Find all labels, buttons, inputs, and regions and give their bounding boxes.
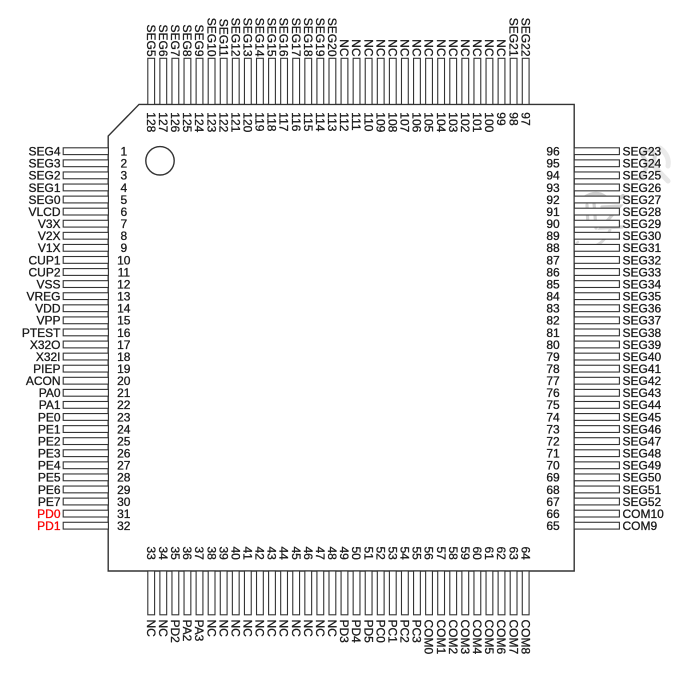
- svg-text:39: 39: [216, 546, 230, 560]
- svg-text:34: 34: [156, 546, 170, 560]
- svg-text:61: 61: [482, 546, 496, 560]
- svg-text:37: 37: [192, 546, 206, 560]
- svg-text:63: 63: [506, 546, 520, 560]
- svg-text:104: 104: [434, 112, 448, 132]
- svg-text:62: 62: [494, 546, 508, 560]
- svg-text:64: 64: [518, 546, 532, 560]
- svg-text:SEG9: SEG9: [192, 24, 206, 56]
- svg-text:106: 106: [410, 112, 424, 132]
- svg-text:COM0: COM0: [422, 620, 436, 655]
- svg-text:NC: NC: [422, 39, 436, 57]
- svg-text:SEG15: SEG15: [265, 18, 279, 57]
- svg-text:97: 97: [518, 112, 532, 126]
- svg-text:114: 114: [313, 112, 327, 131]
- svg-text:COM9: COM9: [623, 519, 658, 533]
- svg-text:COM3: COM3: [458, 620, 472, 655]
- svg-text:COM8: COM8: [518, 620, 532, 655]
- svg-text:NC: NC: [156, 620, 170, 638]
- svg-text:108: 108: [385, 112, 399, 132]
- svg-text:NC: NC: [446, 39, 460, 57]
- svg-text:NC: NC: [398, 39, 412, 57]
- svg-text:110: 110: [361, 112, 375, 131]
- svg-text:SEG11: SEG11: [216, 19, 230, 57]
- svg-text:121: 121: [228, 112, 242, 132]
- svg-text:NC: NC: [325, 620, 339, 638]
- svg-text:NC: NC: [301, 620, 315, 638]
- svg-text:COM4: COM4: [470, 620, 484, 655]
- svg-text:109: 109: [373, 112, 387, 132]
- svg-text:56: 56: [422, 546, 436, 560]
- svg-text:59: 59: [458, 546, 472, 560]
- svg-text:SEG17: SEG17: [289, 18, 303, 57]
- svg-text:35: 35: [168, 546, 182, 560]
- svg-text:127: 127: [156, 112, 170, 132]
- svg-text:NC: NC: [277, 620, 291, 638]
- svg-text:115: 115: [301, 112, 315, 131]
- svg-text:45: 45: [289, 546, 303, 560]
- svg-text:NC: NC: [349, 39, 363, 57]
- svg-text:PA2: PA2: [180, 620, 194, 642]
- svg-text:42: 42: [253, 546, 267, 560]
- svg-text:NC: NC: [434, 39, 448, 57]
- svg-text:SEG8: SEG8: [180, 24, 194, 56]
- svg-text:PD1: PD1: [37, 519, 61, 533]
- svg-text:NC: NC: [253, 620, 267, 638]
- svg-text:NC: NC: [458, 39, 472, 57]
- svg-text:NC: NC: [494, 39, 508, 57]
- svg-text:NC: NC: [240, 620, 254, 638]
- svg-text:SEG18: SEG18: [301, 18, 315, 57]
- svg-text:NC: NC: [228, 620, 242, 638]
- svg-text:123: 123: [204, 112, 218, 132]
- svg-text:100: 100: [482, 112, 496, 132]
- svg-text:NC: NC: [289, 620, 303, 638]
- svg-text:NC: NC: [204, 620, 218, 638]
- svg-text:99: 99: [494, 112, 508, 126]
- svg-text:SEG6: SEG6: [156, 24, 170, 56]
- svg-text:NC: NC: [470, 39, 484, 57]
- svg-text:COM6: COM6: [494, 620, 508, 655]
- svg-text:SEG16: SEG16: [277, 18, 291, 57]
- svg-text:PD4: PD4: [349, 620, 363, 644]
- svg-text:49: 49: [337, 546, 351, 560]
- svg-text:116: 116: [289, 112, 303, 131]
- svg-text:47: 47: [313, 546, 327, 560]
- svg-text:50: 50: [349, 546, 363, 560]
- svg-text:SEG19: SEG19: [313, 18, 327, 57]
- svg-text:COM7: COM7: [506, 620, 520, 655]
- svg-text:SEG21: SEG21: [506, 18, 520, 57]
- svg-text:57: 57: [434, 546, 448, 560]
- svg-text:NC: NC: [313, 620, 327, 638]
- svg-text:52: 52: [373, 546, 387, 560]
- svg-text:102: 102: [458, 112, 472, 132]
- svg-text:NC: NC: [385, 39, 399, 57]
- svg-text:58: 58: [446, 546, 460, 560]
- svg-text:PD5: PD5: [361, 620, 375, 644]
- svg-text:PC2: PC2: [398, 620, 412, 644]
- svg-text:NC: NC: [216, 620, 230, 638]
- svg-text:NC: NC: [265, 620, 279, 638]
- svg-text:101: 101: [470, 112, 484, 132]
- svg-text:SEG22: SEG22: [518, 18, 532, 57]
- svg-text:SEG12: SEG12: [228, 18, 242, 57]
- svg-text:107: 107: [398, 112, 412, 132]
- svg-text:54: 54: [398, 546, 412, 560]
- svg-text:112: 112: [337, 112, 351, 131]
- svg-text:119: 119: [253, 112, 267, 131]
- svg-text:NC: NC: [337, 39, 351, 57]
- svg-text:113: 113: [325, 112, 339, 131]
- svg-text:125: 125: [180, 112, 194, 132]
- svg-text:120: 120: [240, 112, 254, 132]
- svg-text:COM1: COM1: [434, 620, 448, 655]
- svg-text:SEG13: SEG13: [240, 18, 254, 57]
- svg-text:33: 33: [144, 546, 158, 560]
- svg-text:NC: NC: [373, 39, 387, 57]
- svg-text:111: 111: [349, 112, 363, 131]
- svg-text:NC: NC: [482, 39, 496, 57]
- svg-text:105: 105: [422, 112, 436, 132]
- svg-text:32: 32: [117, 519, 131, 533]
- svg-text:COM2: COM2: [446, 620, 460, 655]
- svg-text:SEG20: SEG20: [325, 18, 339, 57]
- svg-text:SEG14: SEG14: [253, 18, 267, 57]
- svg-text:NC: NC: [361, 39, 375, 57]
- svg-text:98: 98: [506, 112, 520, 126]
- svg-text:40: 40: [228, 546, 242, 560]
- svg-text:43: 43: [265, 546, 279, 560]
- svg-text:NC: NC: [410, 39, 424, 57]
- svg-text:51: 51: [361, 546, 375, 560]
- svg-text:126: 126: [168, 112, 182, 132]
- svg-text:60: 60: [470, 546, 484, 560]
- svg-text:118: 118: [265, 112, 279, 131]
- svg-text:124: 124: [192, 112, 206, 132]
- svg-text:PD2: PD2: [168, 620, 182, 644]
- svg-text:55: 55: [410, 546, 424, 560]
- svg-text:103: 103: [446, 112, 460, 132]
- svg-text:122: 122: [216, 112, 230, 132]
- svg-text:SEG5: SEG5: [144, 24, 158, 56]
- svg-text:NC: NC: [144, 620, 158, 638]
- svg-text:PD3: PD3: [337, 620, 351, 644]
- svg-text:COM5: COM5: [482, 620, 496, 655]
- svg-text:128: 128: [144, 112, 158, 132]
- svg-text:SEG10: SEG10: [204, 18, 218, 57]
- svg-text:38: 38: [204, 546, 218, 560]
- svg-text:SEG7: SEG7: [168, 24, 182, 56]
- svg-text:PA3: PA3: [192, 620, 206, 642]
- svg-text:117: 117: [277, 112, 291, 131]
- svg-text:65: 65: [546, 519, 560, 533]
- svg-text:53: 53: [385, 546, 399, 560]
- svg-text:46: 46: [301, 546, 315, 560]
- svg-text:44: 44: [277, 546, 291, 560]
- svg-text:36: 36: [180, 546, 194, 560]
- svg-text:PC0: PC0: [373, 620, 387, 644]
- svg-text:48: 48: [325, 546, 339, 560]
- svg-text:PC3: PC3: [410, 620, 424, 644]
- svg-text:41: 41: [240, 546, 254, 560]
- svg-text:PC1: PC1: [385, 620, 399, 644]
